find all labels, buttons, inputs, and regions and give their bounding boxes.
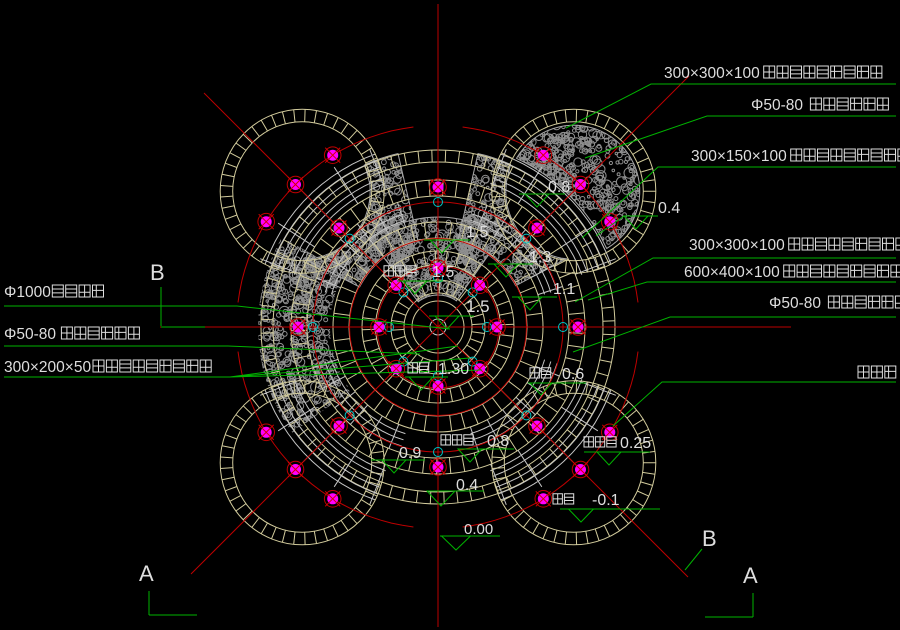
svg-text:0.8: 0.8	[548, 179, 570, 196]
svg-text:0.00: 0.00	[464, 521, 493, 538]
svg-text:1.5: 1.5	[466, 224, 488, 241]
svg-text:0.8: 0.8	[487, 433, 509, 450]
svg-text:A: A	[139, 561, 154, 586]
svg-text:0.9: 0.9	[399, 445, 421, 462]
svg-text:Φ50-80: Φ50-80	[769, 295, 821, 312]
svg-text:0.25: 0.25	[620, 435, 651, 452]
svg-text:Φ1000: Φ1000	[4, 284, 51, 301]
svg-text:1.30: 1.30	[438, 361, 469, 378]
svg-text:0.6: 0.6	[562, 366, 584, 383]
svg-text:-0.1: -0.1	[592, 492, 620, 509]
svg-text:300×300×100: 300×300×100	[664, 65, 760, 82]
svg-text:0.4: 0.4	[658, 200, 680, 217]
svg-text:300×300×100: 300×300×100	[689, 237, 785, 254]
svg-text:600×400×100: 600×400×100	[684, 264, 780, 281]
svg-text:1.3: 1.3	[529, 249, 551, 266]
svg-text:Φ50-80: Φ50-80	[751, 97, 803, 114]
svg-text:300×200×50: 300×200×50	[4, 359, 91, 376]
svg-text:B: B	[702, 526, 717, 551]
svg-text:A: A	[743, 563, 758, 588]
svg-text:1.5: 1.5	[432, 264, 454, 281]
svg-text:B: B	[150, 260, 165, 285]
svg-text:1.1: 1.1	[553, 281, 575, 298]
svg-text:300×150×100: 300×150×100	[691, 148, 787, 165]
svg-text:Φ50-80: Φ50-80	[4, 326, 56, 343]
svg-text:0.4: 0.4	[456, 477, 478, 494]
svg-text:1.5: 1.5	[466, 297, 490, 316]
